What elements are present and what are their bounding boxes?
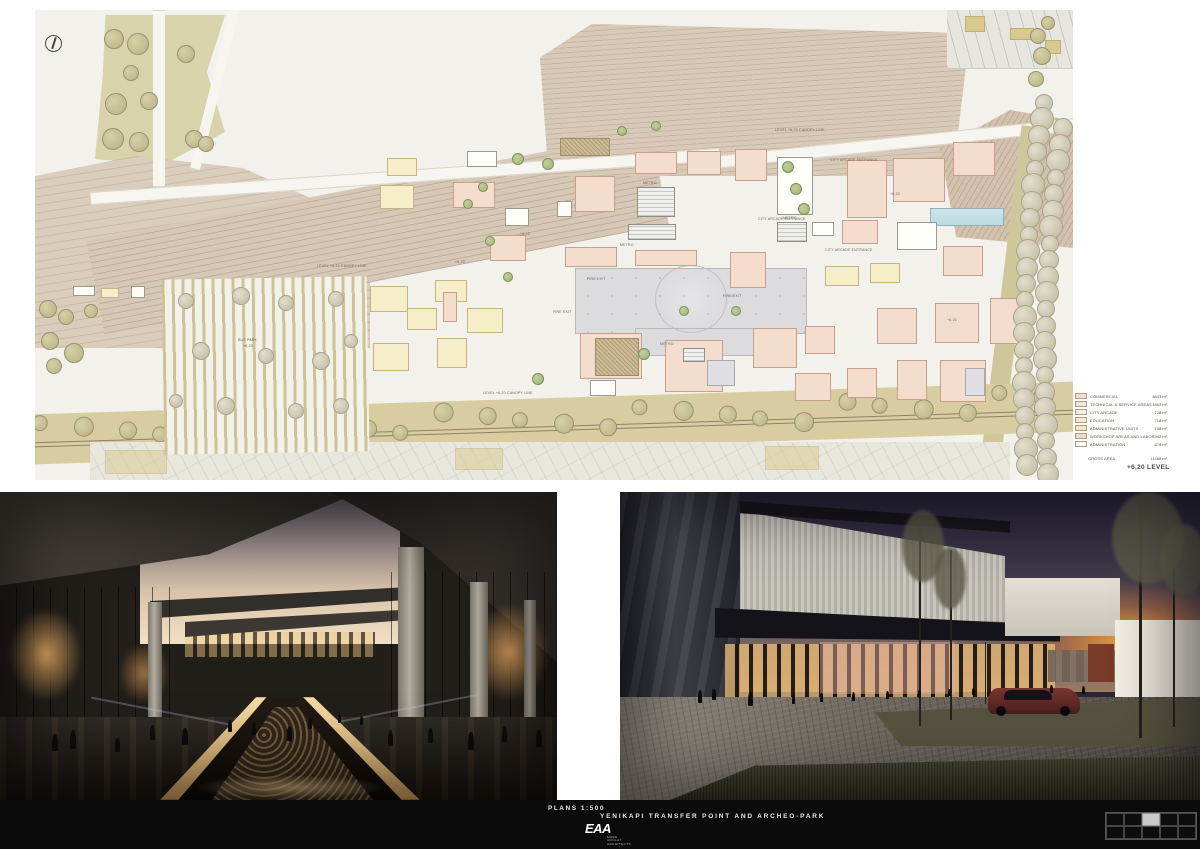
tree	[554, 413, 575, 434]
tree	[232, 287, 250, 305]
distant-brick-building	[1088, 644, 1114, 682]
plan-label: CITY ARCADE ENTRANCE	[830, 158, 878, 162]
eaa-logo-subtext: EMRE AROLAT ARCHITECTS	[607, 836, 631, 846]
person-silhouette	[468, 732, 474, 750]
tree	[913, 399, 934, 420]
plan-building-block	[628, 224, 676, 240]
tree	[532, 373, 544, 385]
legend-gross-row: GROSS AREA 11468 m²	[1075, 454, 1167, 462]
eaa-logo: EAA	[585, 821, 611, 836]
person-silhouette	[918, 690, 921, 698]
person-silhouette	[852, 692, 855, 701]
plan-label: +6,20	[890, 192, 900, 196]
glass-facade-right	[375, 572, 557, 762]
tree	[1028, 71, 1044, 87]
perforated-facade-band	[675, 500, 1005, 622]
plan-building-block	[877, 308, 917, 344]
legend-color-chip	[1075, 393, 1087, 399]
legend-color-chip	[1075, 441, 1087, 447]
bridge-beam	[150, 580, 410, 650]
legend-value: 718 m²	[1155, 418, 1167, 423]
dusk-sky	[620, 492, 1200, 692]
legend-label: TECHNICAL & SERVICE AREAS	[1090, 402, 1152, 407]
tree	[617, 126, 627, 136]
plans-scale-label: PLANS 1:500	[548, 805, 605, 812]
tree-trunk	[985, 642, 986, 704]
plan-label: FIRE EXIT	[553, 310, 572, 314]
legend-rows: COMMERCIAL8843 m²TECHNICAL & SERVICE ARE…	[1075, 392, 1167, 448]
trench-uplight	[160, 697, 420, 800]
trench-uplight	[160, 697, 420, 800]
canopy-roof-right	[330, 492, 557, 662]
tree	[41, 332, 59, 350]
project-title: YENIKAPI TRANSFER POINT AND ARCHEO-PARK	[600, 813, 825, 820]
tree	[344, 334, 358, 348]
tree	[638, 348, 650, 360]
person-silhouette	[748, 692, 753, 706]
bridge-beam	[185, 610, 400, 640]
legend-color-chip	[1075, 417, 1087, 423]
tree	[731, 306, 741, 316]
tree	[102, 128, 124, 150]
plan-building-block	[380, 185, 414, 209]
plan-label: CITY ARCADE ENTRANCE	[758, 217, 806, 221]
plan-building-block	[730, 252, 766, 288]
person-silhouette	[820, 693, 823, 702]
plan-label: FIRE EXIT	[587, 277, 606, 281]
plan-building-block	[753, 328, 797, 368]
plan-label: LEVEL +6,20 CANOPY LINE	[483, 391, 533, 395]
plan-building-block	[812, 222, 834, 236]
canopy-roof-left	[0, 492, 360, 612]
sheet-nav-cell[interactable]	[1160, 826, 1178, 839]
glass-balustrade	[331, 694, 479, 725]
sheet-nav-cell[interactable]	[1178, 813, 1196, 826]
plan-building-block	[893, 158, 945, 202]
plaza-circle	[655, 265, 727, 333]
sunset-glow	[1015, 582, 1200, 677]
tree	[84, 304, 98, 318]
sheet-nav-cell[interactable]	[1142, 826, 1160, 839]
plan-building-block	[560, 138, 610, 156]
plan-building-block	[870, 263, 900, 283]
person-silhouette	[287, 726, 292, 741]
tree	[1030, 28, 1046, 44]
plan-building-block	[965, 368, 985, 396]
legend-label: EDUCATION	[1090, 418, 1155, 423]
legend-value: 8843 m²	[1152, 394, 1167, 399]
tree	[312, 352, 330, 370]
plan-building-block	[777, 222, 807, 242]
tree	[1016, 454, 1038, 476]
tree	[328, 291, 344, 307]
tree	[217, 397, 235, 415]
plan-building-block	[131, 286, 145, 298]
plan-building-block	[467, 151, 497, 167]
tree-foliage	[934, 547, 966, 609]
plan-label: FIRE EXIT	[723, 294, 742, 298]
legend-label: ADMINISTRATION	[1090, 442, 1155, 447]
plan-building-block	[443, 292, 457, 322]
legend-row: WORKSHOP AREAS AND LABORATORIES942 m²	[1075, 432, 1167, 440]
distant-city	[1048, 650, 1130, 682]
tree	[790, 183, 802, 195]
archaeological-ruins	[160, 707, 420, 800]
render-night-promenade	[0, 492, 557, 800]
tree	[1041, 16, 1055, 30]
tree	[871, 398, 887, 414]
person-silhouette	[338, 714, 341, 723]
person-silhouette	[115, 738, 120, 752]
sky	[140, 492, 400, 644]
roof-edge	[620, 492, 1010, 562]
plan-label: METRO	[643, 181, 657, 185]
legend-color-chip	[1075, 401, 1087, 407]
plan-label: CITY ARCADE ENTRANCE	[825, 248, 873, 252]
tree	[46, 358, 62, 374]
legend-color-chip	[1075, 425, 1087, 431]
car-cabin	[1004, 690, 1052, 700]
car-wheel	[1060, 706, 1070, 716]
car-wheel	[996, 706, 1006, 716]
person-silhouette	[972, 688, 975, 695]
existing-plot	[765, 446, 819, 470]
legend-value: 1862 m²	[1152, 402, 1167, 407]
tree	[433, 402, 454, 423]
tree	[35, 415, 48, 431]
legend-row: COMMERCIAL8843 m²	[1075, 392, 1167, 400]
tree	[123, 65, 139, 81]
tree	[177, 45, 195, 63]
plan-building-block	[557, 201, 572, 217]
person-silhouette	[252, 722, 256, 735]
tree	[463, 199, 473, 209]
plan-label: LEVEL +6,20 CANOPY LINE	[775, 128, 825, 132]
legend-label: CITY ARCADE	[1090, 410, 1155, 415]
glass-facade-left	[0, 587, 185, 752]
plan-building-block	[825, 266, 859, 286]
site-plan: METROMETROMETROMETROCITY ARCADE ENTRANCE…	[35, 10, 1073, 480]
grass-band	[875, 698, 1200, 746]
sheet-nav-cell[interactable]	[1106, 813, 1124, 826]
person-silhouette	[70, 730, 76, 749]
tree	[959, 404, 978, 423]
plan-building-block	[795, 373, 831, 401]
person-silhouette	[1082, 686, 1085, 694]
sports-car	[988, 688, 1080, 714]
plan-label: +6,20	[455, 260, 465, 264]
sheet-nav-cell[interactable]	[1124, 813, 1142, 826]
tree	[74, 416, 95, 437]
cobblestone-plaza	[620, 697, 1200, 800]
legend-row: EDUCATION718 m²	[1075, 416, 1167, 424]
person-silhouette	[428, 728, 433, 743]
plan-building-block	[407, 308, 437, 330]
distant-storefront-lights	[185, 632, 375, 657]
tree	[119, 421, 138, 440]
plan-building-block	[467, 308, 503, 333]
plan-building-block	[635, 250, 697, 266]
person-silhouette	[792, 694, 795, 704]
plan-building-block	[683, 348, 705, 362]
tree-foliage	[1112, 492, 1184, 584]
tree	[198, 136, 214, 152]
tree	[673, 401, 694, 422]
tree-trunk	[950, 550, 952, 720]
sheet-nav-cell[interactable]	[1142, 813, 1160, 826]
light-building-volume	[1005, 578, 1120, 636]
white-building-right	[1115, 620, 1200, 724]
plan-building-block	[373, 343, 409, 371]
tree	[651, 121, 661, 131]
plan-label: +6,20	[520, 232, 530, 236]
tree	[782, 161, 794, 173]
plan-building-block	[595, 338, 639, 376]
render-dusk-exterior	[620, 492, 1200, 800]
legend-value: 158 m²	[1155, 426, 1167, 431]
tree	[631, 399, 647, 415]
tree-foliage	[1160, 524, 1200, 596]
gross-area-value: 11468 m²	[1150, 456, 1167, 461]
tree	[178, 293, 194, 309]
presentation-board: METROMETROMETROMETROCITY ARCADE ENTRANCE…	[0, 0, 1200, 849]
person-silhouette	[536, 730, 542, 747]
plan-building-block	[370, 286, 408, 312]
tree	[512, 412, 528, 428]
glass-pavilion-lit	[725, 644, 1055, 699]
plan-building-block	[897, 222, 937, 250]
person-silhouette	[1050, 685, 1053, 693]
tree	[105, 93, 127, 115]
legend-label: COMMERCIAL	[1090, 394, 1152, 399]
tree	[478, 182, 488, 192]
plan-building-block	[453, 182, 495, 208]
pink-glass-reflection	[820, 642, 955, 694]
sheet-nav-cell[interactable]	[1106, 826, 1124, 839]
plan-building-block	[687, 151, 721, 175]
plan-building-block	[490, 235, 526, 261]
plan-label: LEVEL +6,20 CANOPY LINE	[317, 264, 367, 268]
sheet-navigator	[1105, 812, 1197, 840]
tree	[503, 272, 513, 282]
plan-building-block	[590, 380, 616, 396]
sheet-nav-cell[interactable]	[1178, 826, 1196, 839]
legend-color-chip	[1075, 409, 1087, 415]
existing-plot	[455, 448, 503, 470]
tree	[169, 394, 183, 408]
tree	[278, 295, 294, 311]
warm-interior-glow	[470, 602, 550, 702]
legend-value: 942 m²	[1155, 434, 1167, 439]
plan-label: BUS PARK	[238, 338, 257, 342]
plan-label: +6,20	[243, 344, 253, 348]
person-silhouette	[182, 728, 188, 745]
plan-building-block	[565, 247, 617, 267]
tree-trunk	[1139, 492, 1142, 738]
person-silhouette	[228, 720, 232, 732]
foreground-grass	[670, 756, 1200, 800]
tree	[478, 407, 497, 426]
tree	[127, 33, 149, 55]
gross-area-label: GROSS AREA	[1088, 456, 1150, 461]
footer-band: PLANS 1:500 YENIKAPI TRANSFER POINT AND …	[0, 800, 1200, 849]
plan-building-block	[635, 152, 677, 174]
trench-uplight-glow	[195, 775, 385, 800]
existing-building	[965, 16, 985, 32]
person-silhouette	[712, 689, 716, 700]
legend-color-chip	[1075, 433, 1087, 439]
plan-label: METRO	[620, 243, 634, 247]
tree	[192, 342, 210, 360]
level-label: +6,20 LEVEL	[1127, 464, 1170, 471]
plan-building-block	[437, 338, 467, 368]
tree	[798, 203, 810, 215]
plan-label: +6,20	[947, 318, 957, 322]
tree-trunk	[1173, 532, 1175, 727]
plan-building-block	[735, 149, 767, 181]
person-silhouette	[886, 691, 889, 699]
area-legend: COMMERCIAL8843 m²TECHNICAL & SERVICE ARE…	[1075, 392, 1167, 462]
plan-building-block	[707, 360, 735, 386]
tree	[104, 29, 124, 49]
tree	[288, 403, 304, 419]
cantilever-slab	[715, 604, 1060, 652]
plan-building-block	[387, 158, 417, 176]
legend-row: TECHNICAL & SERVICE AREAS1862 m²	[1075, 400, 1167, 408]
promenade-floor	[0, 717, 557, 800]
legend-value: 728 m²	[1155, 410, 1167, 415]
plan-building-block	[847, 160, 887, 218]
plan-building-block	[505, 208, 529, 226]
warm-interior-glow	[8, 607, 83, 702]
person-silhouette	[388, 730, 393, 746]
person-silhouette	[698, 690, 702, 703]
logo-sub-line: ARCHITECTS	[607, 843, 631, 846]
legend-label: WORKSHOP AREAS AND LABORATORIES	[1090, 434, 1155, 439]
tree	[542, 158, 554, 170]
tree-trunk	[919, 520, 921, 726]
person-silhouette	[502, 726, 507, 742]
glass-volume-left	[620, 492, 740, 722]
plan-building-block	[897, 360, 927, 400]
tree	[392, 425, 408, 441]
legend-row: ADMINISTRATIVE UNITS158 m²	[1075, 424, 1167, 432]
plan-building-block	[842, 220, 878, 244]
person-silhouette	[948, 689, 951, 696]
tree	[129, 132, 149, 152]
plan-building-block	[575, 176, 615, 212]
person-silhouette	[150, 725, 155, 740]
tree	[258, 348, 274, 364]
plan-building-block	[935, 303, 979, 343]
sheet-nav-cell[interactable]	[1124, 826, 1142, 839]
person-silhouette	[52, 734, 58, 751]
plan-building-block	[953, 142, 995, 176]
reflecting-pool	[930, 208, 1004, 226]
tree	[991, 385, 1007, 401]
tree	[58, 309, 74, 325]
concrete-column	[148, 602, 162, 732]
tree	[485, 236, 495, 246]
plan-building-block	[101, 288, 119, 298]
plan-building-block	[847, 368, 877, 398]
tree	[1037, 463, 1059, 480]
person-silhouette	[360, 716, 363, 725]
tree	[64, 343, 84, 363]
tree	[1033, 47, 1051, 65]
concrete-column	[398, 547, 424, 762]
legend-label: ADMINISTRATIVE UNITS	[1090, 426, 1155, 431]
plan-building-block	[637, 187, 675, 217]
tree	[794, 412, 815, 433]
existing-plot	[105, 450, 167, 474]
tree	[599, 418, 618, 437]
north-arrow-icon	[45, 35, 62, 52]
concrete-column	[524, 600, 536, 745]
warm-interior-glow	[118, 642, 170, 704]
tree	[333, 398, 349, 414]
plan-building-block	[73, 286, 95, 296]
concrete-column	[470, 582, 488, 742]
tree-foliage	[902, 510, 944, 582]
excavation-trench	[160, 697, 420, 800]
legend-value: 879 m²	[1155, 442, 1167, 447]
plan-building-block	[943, 246, 983, 276]
tree	[679, 306, 689, 316]
legend-row: ADMINISTRATION879 m²	[1075, 440, 1167, 448]
sheet-nav-cell[interactable]	[1160, 813, 1178, 826]
tree	[512, 153, 524, 165]
glass-balustrade	[91, 697, 229, 726]
tree	[140, 92, 158, 110]
plan-label: METRO	[660, 342, 674, 346]
tree	[39, 300, 57, 318]
plan-building-block	[805, 326, 835, 354]
legend-row: CITY ARCADE728 m²	[1075, 408, 1167, 416]
person-silhouette	[308, 718, 312, 729]
